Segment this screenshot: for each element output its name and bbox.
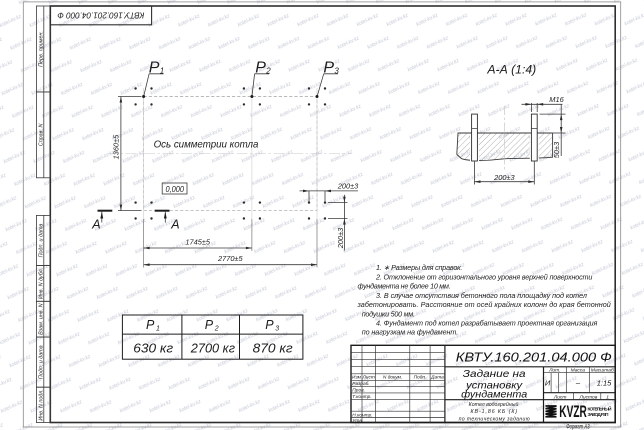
svg-text:1: 1: [606, 394, 609, 400]
svg-text:Масса: Масса: [571, 367, 586, 373]
svg-text:фундамента: фундамента: [461, 389, 527, 401]
svg-text:по техническому заданию: по техническому заданию: [459, 417, 530, 423]
svg-text:Перв. примен.: Перв. примен.: [39, 31, 45, 67]
svg-text:забетонировать. Расстояние от: забетонировать. Расстояние от осей крайн…: [357, 300, 611, 309]
svg-text:2700 кг: 2700 кг: [190, 341, 235, 355]
svg-text:3. В случае отсутствия бетонно: 3. В случае отсутствия бетонного пола пл…: [376, 291, 587, 300]
svg-text:КОТЕЛЬНЫЙ: КОТЕЛЬНЫЙ: [588, 405, 613, 412]
svg-text:КВТУ.160.201.04.000 Ф: КВТУ.160.201.04.000 Ф: [456, 349, 612, 364]
svg-text:Ось симметрии котла: Ось симметрии котла: [154, 140, 259, 151]
svg-text:Т.контр.: Т.контр.: [352, 394, 371, 400]
svg-text:4. Фундамент под котел разраба: 4. Фундамент под котел разрабатывает про…: [376, 319, 598, 328]
svg-text:2. Отклонение от горизонтально: 2. Отклонение от горизонтального уровня …: [375, 272, 592, 281]
svg-text:0,000: 0,000: [166, 184, 185, 194]
svg-text:Лист: Лист: [553, 394, 567, 400]
svg-text:подушки 500 мм.: подушки 500 мм.: [362, 309, 415, 318]
svg-text:P: P: [265, 318, 274, 332]
svg-text:1360±5: 1360±5: [112, 134, 121, 159]
svg-text:Н.контр.: Н.контр.: [352, 412, 372, 418]
svg-text:Инв. N дубл.: Инв. N дубл.: [39, 268, 45, 299]
svg-text:870 кг: 870 кг: [253, 341, 293, 355]
svg-text:50±3: 50±3: [552, 141, 561, 158]
svg-text:1: 1: [156, 326, 160, 333]
svg-text:–: –: [575, 379, 581, 388]
svg-text:Лист: Лист: [362, 375, 375, 381]
svg-text:Изм: Изм: [352, 375, 362, 381]
svg-text:1745±5: 1745±5: [185, 238, 210, 247]
svg-text:630 кг: 630 кг: [133, 341, 173, 355]
svg-text:Инв. N подл.: Инв. N подл.: [39, 389, 45, 421]
svg-text:Разраб.: Разраб.: [352, 381, 369, 387]
svg-text:Подп.: Подп.: [414, 375, 427, 381]
svg-text:Листов: Листов: [579, 394, 598, 400]
svg-text:КВ-1,86 КБ (К): КВ-1,86 КБ (К): [471, 409, 518, 415]
svg-text:Взам. инв. N: Взам. инв. N: [39, 303, 45, 335]
svg-text:Пров.: Пров.: [352, 388, 365, 394]
svg-text:M16: M16: [549, 95, 564, 104]
svg-text:P: P: [146, 318, 155, 332]
svg-text:3: 3: [275, 326, 279, 333]
svg-text:И: И: [545, 379, 551, 388]
svg-text:2770±5: 2770±5: [217, 254, 243, 263]
svg-text:по нагрузкам на фундамент.: по нагрузкам на фундамент.: [362, 328, 459, 337]
svg-text:Подп. и дата: Подп. и дата: [39, 345, 45, 379]
svg-text:А-А (1:4): А-А (1:4): [486, 65, 536, 77]
svg-text:Подп. и дата: Подп. и дата: [39, 224, 45, 258]
svg-text:200±3: 200±3: [493, 173, 515, 182]
svg-text:Справ. N: Справ. N: [39, 124, 45, 147]
svg-text:P: P: [205, 318, 214, 332]
svg-text:Утв.: Утв.: [352, 418, 363, 424]
svg-text:N докум.: N докум.: [383, 375, 402, 381]
svg-text:KVZR: KVZR: [559, 403, 587, 421]
svg-text:ЗАВОД, РЗП: ЗАВОД, РЗП: [588, 412, 610, 417]
svg-text:Лит.: Лит.: [548, 367, 560, 373]
svg-text:200±3: 200±3: [336, 227, 345, 249]
svg-text:200±3: 200±3: [337, 181, 359, 190]
svg-text:Котел водогрейный: Котел водогрейный: [469, 401, 519, 408]
svg-text:КВТУ.160.201.04.000 Ф: КВТУ.160.201.04.000 Ф: [57, 10, 144, 19]
svg-text:2: 2: [214, 326, 219, 333]
svg-text:фундамента не более 10 мм.: фундамента не более 10 мм.: [358, 282, 451, 291]
svg-text:А: А: [91, 218, 100, 232]
svg-text:Задание на: Задание на: [463, 369, 526, 380]
svg-text:Формат А3: Формат А3: [566, 423, 590, 430]
svg-text:1. ∗ Размеры для справок.: 1. ∗ Размеры для справок.: [376, 263, 462, 272]
svg-text:1:15: 1:15: [597, 379, 612, 388]
svg-text:Дата: Дата: [430, 375, 444, 381]
svg-text:А: А: [170, 218, 179, 232]
svg-text:Масштаб: Масштаб: [591, 367, 614, 373]
